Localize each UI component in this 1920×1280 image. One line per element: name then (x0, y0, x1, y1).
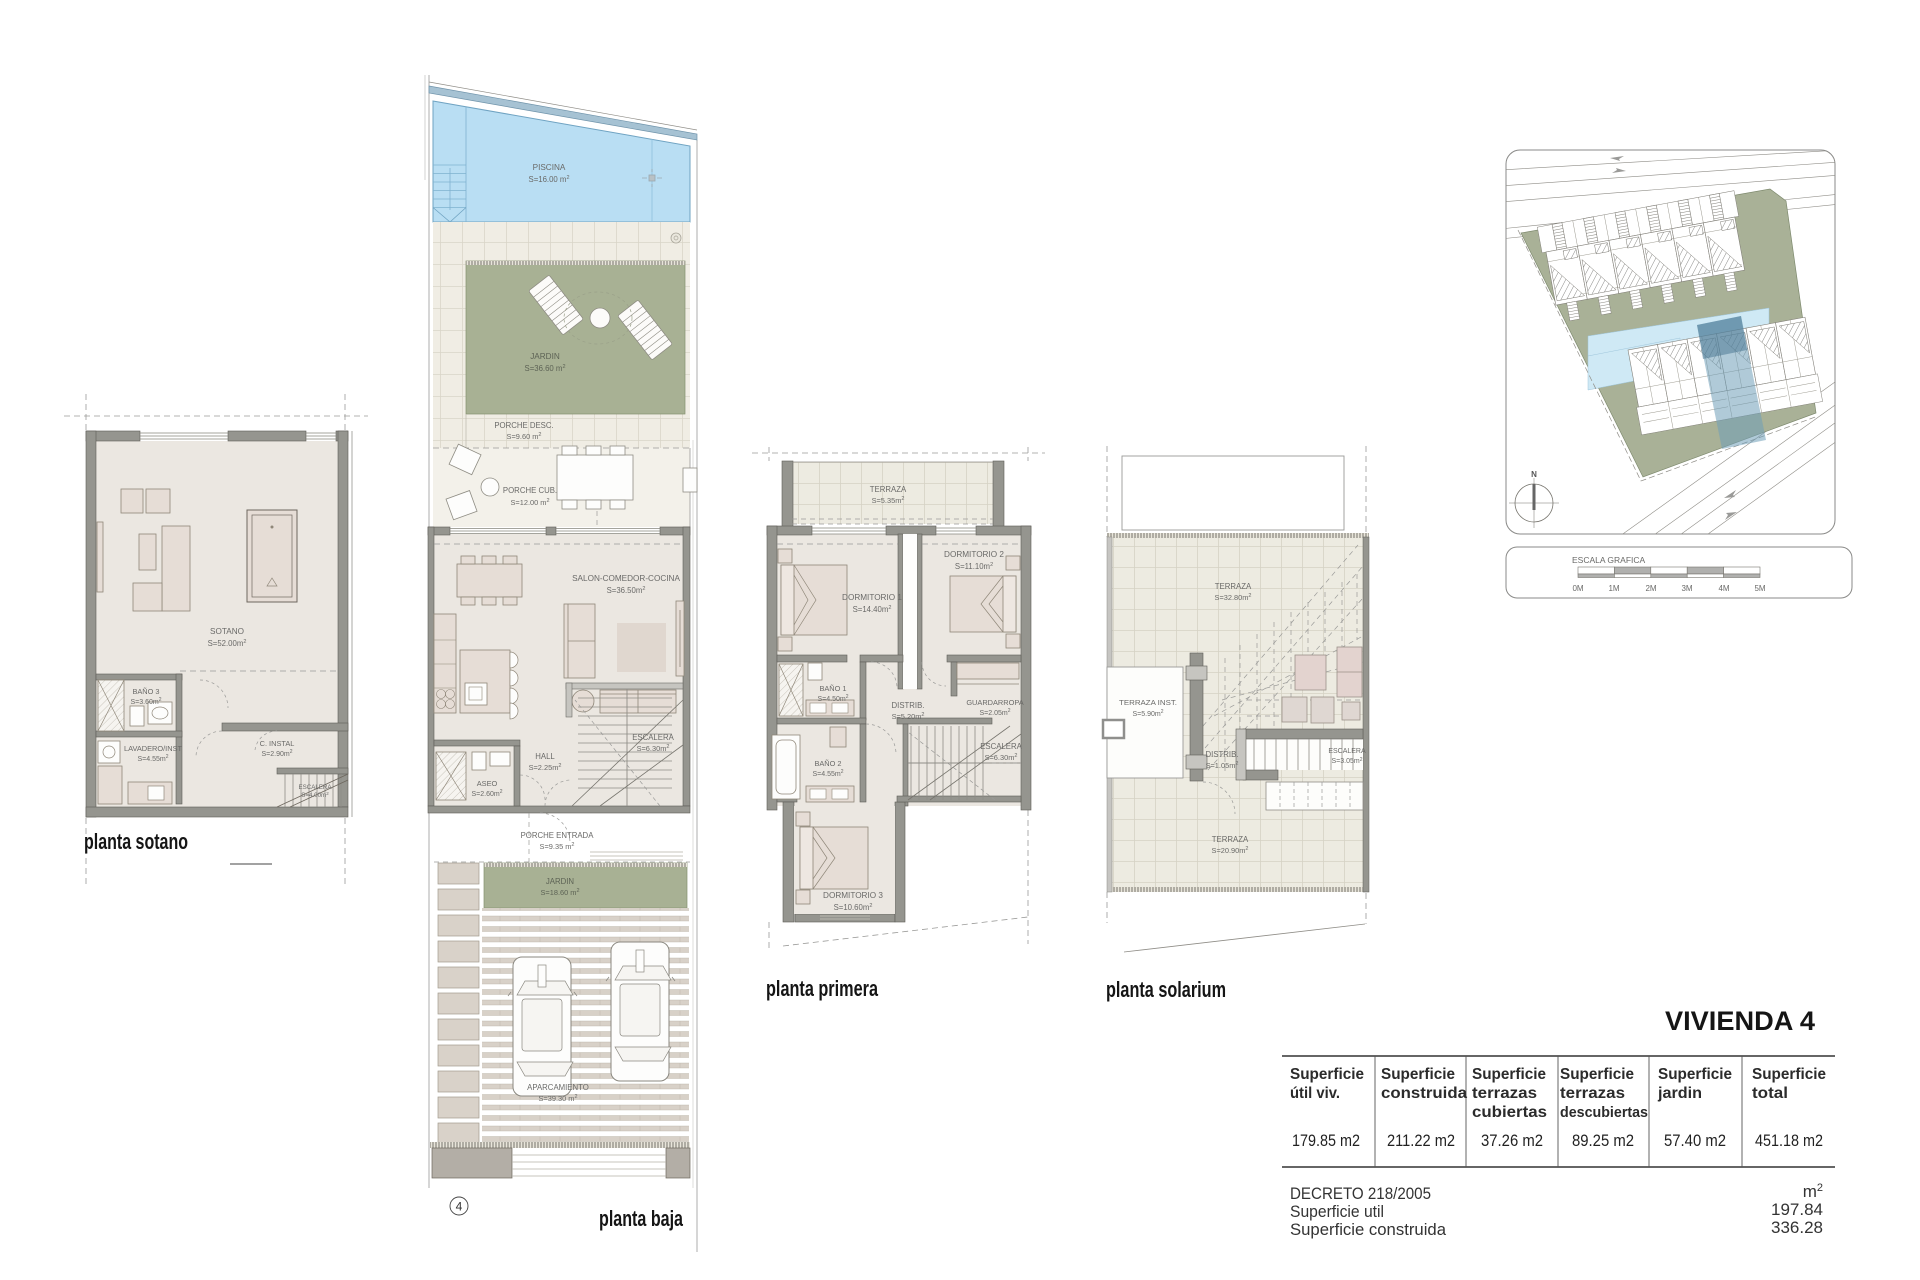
svg-text:S=36.50m2: S=36.50m2 (607, 586, 646, 595)
svg-text:S=5.20m2: S=5.20m2 (892, 712, 925, 721)
svg-text:S=6.30m2: S=6.30m2 (637, 744, 670, 753)
svg-text:DORMITORIO 1: DORMITORIO 1 (842, 593, 902, 602)
svg-text:ESCALERA: ESCALERA (1328, 748, 1366, 755)
svg-text:DISTRIB.: DISTRIB. (1206, 750, 1239, 759)
svg-text:BAÑO 2: BAÑO 2 (814, 759, 841, 768)
svg-text:S=9.35 m2: S=9.35 m2 (540, 842, 575, 851)
svg-text:N: N (1531, 470, 1537, 479)
svg-text:LAVADERO/INST: LAVADERO/INST (124, 744, 183, 753)
svg-text:Superficie util: Superficie util (1290, 1202, 1384, 1221)
svg-text:2M: 2M (1645, 584, 1656, 593)
svg-text:S=36.60 m2: S=36.60 m2 (525, 364, 566, 373)
svg-text:S=18.60 m2: S=18.60 m2 (540, 888, 579, 897)
svg-text:construida: construida (1381, 1085, 1467, 1102)
svg-text:BAÑO 1: BAÑO 1 (819, 684, 846, 693)
svg-text:Superficie: Superficie (1381, 1066, 1455, 1083)
svg-text:PORCHE ENTRADA: PORCHE ENTRADA (521, 831, 595, 840)
svg-text:S=4.55m2: S=4.55m2 (138, 754, 169, 763)
svg-text:4: 4 (456, 1200, 463, 1214)
svg-text:ESCALA GRAFICA: ESCALA GRAFICA (1572, 555, 1646, 565)
svg-text:4M: 4M (1718, 584, 1729, 593)
svg-text:S=20.90m2: S=20.90m2 (1212, 846, 1249, 855)
svg-text:terrazas: terrazas (1472, 1085, 1537, 1102)
svg-text:útil viv.: útil viv. (1290, 1085, 1340, 1102)
svg-text:451.18 m2: 451.18 m2 (1755, 1132, 1823, 1150)
svg-text:Superficie: Superficie (1472, 1066, 1546, 1083)
svg-text:S=16.00 m2: S=16.00 m2 (529, 175, 570, 184)
svg-text:HALL: HALL (535, 752, 555, 761)
svg-text:TERRAZA: TERRAZA (870, 485, 907, 494)
svg-text:DISTRIB.: DISTRIB. (892, 701, 925, 710)
svg-text:S=10.60m2: S=10.60m2 (834, 903, 873, 912)
svg-text:0M: 0M (1572, 584, 1583, 593)
svg-text:PORCHE DESC.: PORCHE DESC. (494, 421, 553, 430)
svg-text:S=4.55m2: S=4.55m2 (813, 769, 844, 778)
svg-text:S=52.00m2: S=52.00m2 (208, 639, 247, 648)
svg-text:S=3.05m2: S=3.05m2 (1332, 757, 1363, 765)
svg-text:PISCINA: PISCINA (533, 163, 566, 172)
svg-text:jardin: jardin (1657, 1085, 1702, 1102)
svg-text:Superficie: Superficie (1658, 1066, 1732, 1083)
svg-text:SOTANO: SOTANO (210, 627, 244, 636)
svg-text:S=2.60m2: S=2.60m2 (472, 789, 503, 798)
svg-text:TERRAZA: TERRAZA (1212, 835, 1249, 844)
svg-text:37.26 m2: 37.26 m2 (1481, 1132, 1543, 1150)
svg-text:VIVIENDA 4: VIVIENDA 4 (1665, 1006, 1815, 1036)
svg-text:ESCALERA: ESCALERA (298, 784, 332, 791)
svg-text:1M: 1M (1608, 584, 1619, 593)
svg-text:Superficie construida: Superficie construida (1290, 1220, 1447, 1239)
svg-text:211.22 m2: 211.22 m2 (1387, 1132, 1455, 1150)
svg-text:BAÑO 3: BAÑO 3 (132, 687, 159, 696)
svg-text:197.84: 197.84 (1771, 1200, 1823, 1219)
svg-text:S=14.40m2: S=14.40m2 (853, 605, 892, 614)
svg-text:179.85 m2: 179.85 m2 (1292, 1132, 1360, 1150)
svg-text:3M: 3M (1681, 584, 1692, 593)
svg-text:S=4.50m2: S=4.50m2 (818, 694, 849, 703)
svg-text:S=12.00 m2: S=12.00 m2 (510, 498, 549, 507)
svg-text:57.40 m2: 57.40 m2 (1664, 1132, 1726, 1150)
svg-text:planta solarium: planta solarium (1106, 977, 1226, 1002)
svg-text:APARCAMIENTO: APARCAMIENTO (527, 1083, 589, 1092)
svg-text:terrazas: terrazas (1560, 1085, 1625, 1102)
svg-text:S=1.05m2: S=1.05m2 (1206, 761, 1239, 770)
svg-text:S=5.90m2: S=5.90m2 (1133, 709, 1164, 718)
svg-text:S=5.35m2: S=5.35m2 (872, 496, 905, 505)
svg-text:ESCALERA: ESCALERA (980, 742, 1022, 751)
svg-text:S=2.25m2: S=2.25m2 (529, 763, 562, 772)
svg-text:C. INSTAL: C. INSTAL (260, 739, 295, 748)
svg-text:DECRETO 218/2005: DECRETO 218/2005 (1290, 1184, 1431, 1203)
svg-text:S=3.60m2: S=3.60m2 (131, 697, 162, 706)
svg-text:DORMITORIO 3: DORMITORIO 3 (823, 891, 883, 900)
svg-text:TERRAZA INST.: TERRAZA INST. (1119, 700, 1177, 707)
svg-text:5M: 5M (1754, 584, 1765, 593)
svg-text:S=2.05m2: S=2.05m2 (980, 708, 1011, 717)
svg-text:planta primera: planta primera (766, 976, 879, 1001)
svg-text:GUARDARROPA: GUARDARROPA (966, 698, 1023, 707)
svg-text:cubiertas: cubiertas (1472, 1104, 1547, 1121)
svg-text:ASEO: ASEO (477, 779, 498, 788)
svg-text:336.28: 336.28 (1771, 1218, 1823, 1237)
svg-text:S=2.90m2: S=2.90m2 (262, 749, 293, 758)
svg-text:Superficie: Superficie (1290, 1066, 1364, 1083)
svg-text:JARDIN: JARDIN (546, 877, 574, 886)
svg-text:JARDIN: JARDIN (530, 352, 560, 361)
svg-text:Superficie: Superficie (1560, 1066, 1634, 1083)
svg-text:ESCALERA: ESCALERA (632, 733, 674, 742)
svg-text:TERRAZA: TERRAZA (1215, 582, 1252, 591)
svg-text:S=9.60 m2: S=9.60 m2 (507, 432, 542, 441)
svg-text:planta sotano: planta sotano (84, 829, 188, 854)
svg-text:S=39.30 m2: S=39.30 m2 (538, 1094, 577, 1103)
svg-text:DORMITORIO 2: DORMITORIO 2 (944, 550, 1004, 559)
svg-text:S=4.00m2: S=4.00m2 (301, 791, 329, 799)
svg-text:S=32.80m2: S=32.80m2 (1215, 593, 1252, 602)
svg-text:descubiertas: descubiertas (1560, 1104, 1648, 1121)
svg-text:Superficie: Superficie (1752, 1066, 1826, 1083)
svg-text:planta baja: planta baja (599, 1206, 684, 1231)
svg-text:SALON-COMEDOR-COCINA: SALON-COMEDOR-COCINA (572, 574, 680, 583)
svg-text:89.25 m2: 89.25 m2 (1572, 1132, 1634, 1150)
svg-text:S=11.10m2: S=11.10m2 (955, 562, 993, 571)
svg-text:S=6.30m2: S=6.30m2 (985, 753, 1018, 762)
svg-text:total: total (1752, 1085, 1788, 1102)
svg-text:PORCHE CUB.: PORCHE CUB. (503, 486, 557, 495)
